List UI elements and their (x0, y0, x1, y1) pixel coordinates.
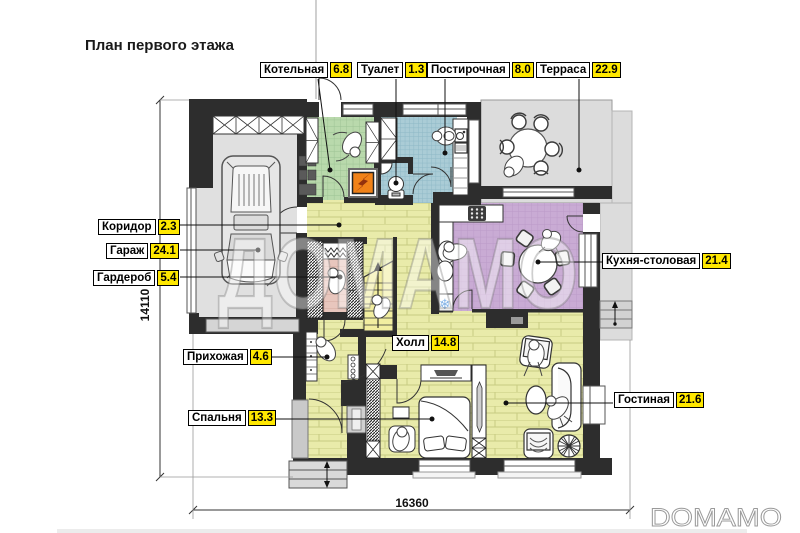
svg-text:❄: ❄ (439, 296, 451, 312)
svg-text:14110: 14110 (138, 288, 152, 321)
svg-text:16360: 16360 (395, 496, 429, 510)
